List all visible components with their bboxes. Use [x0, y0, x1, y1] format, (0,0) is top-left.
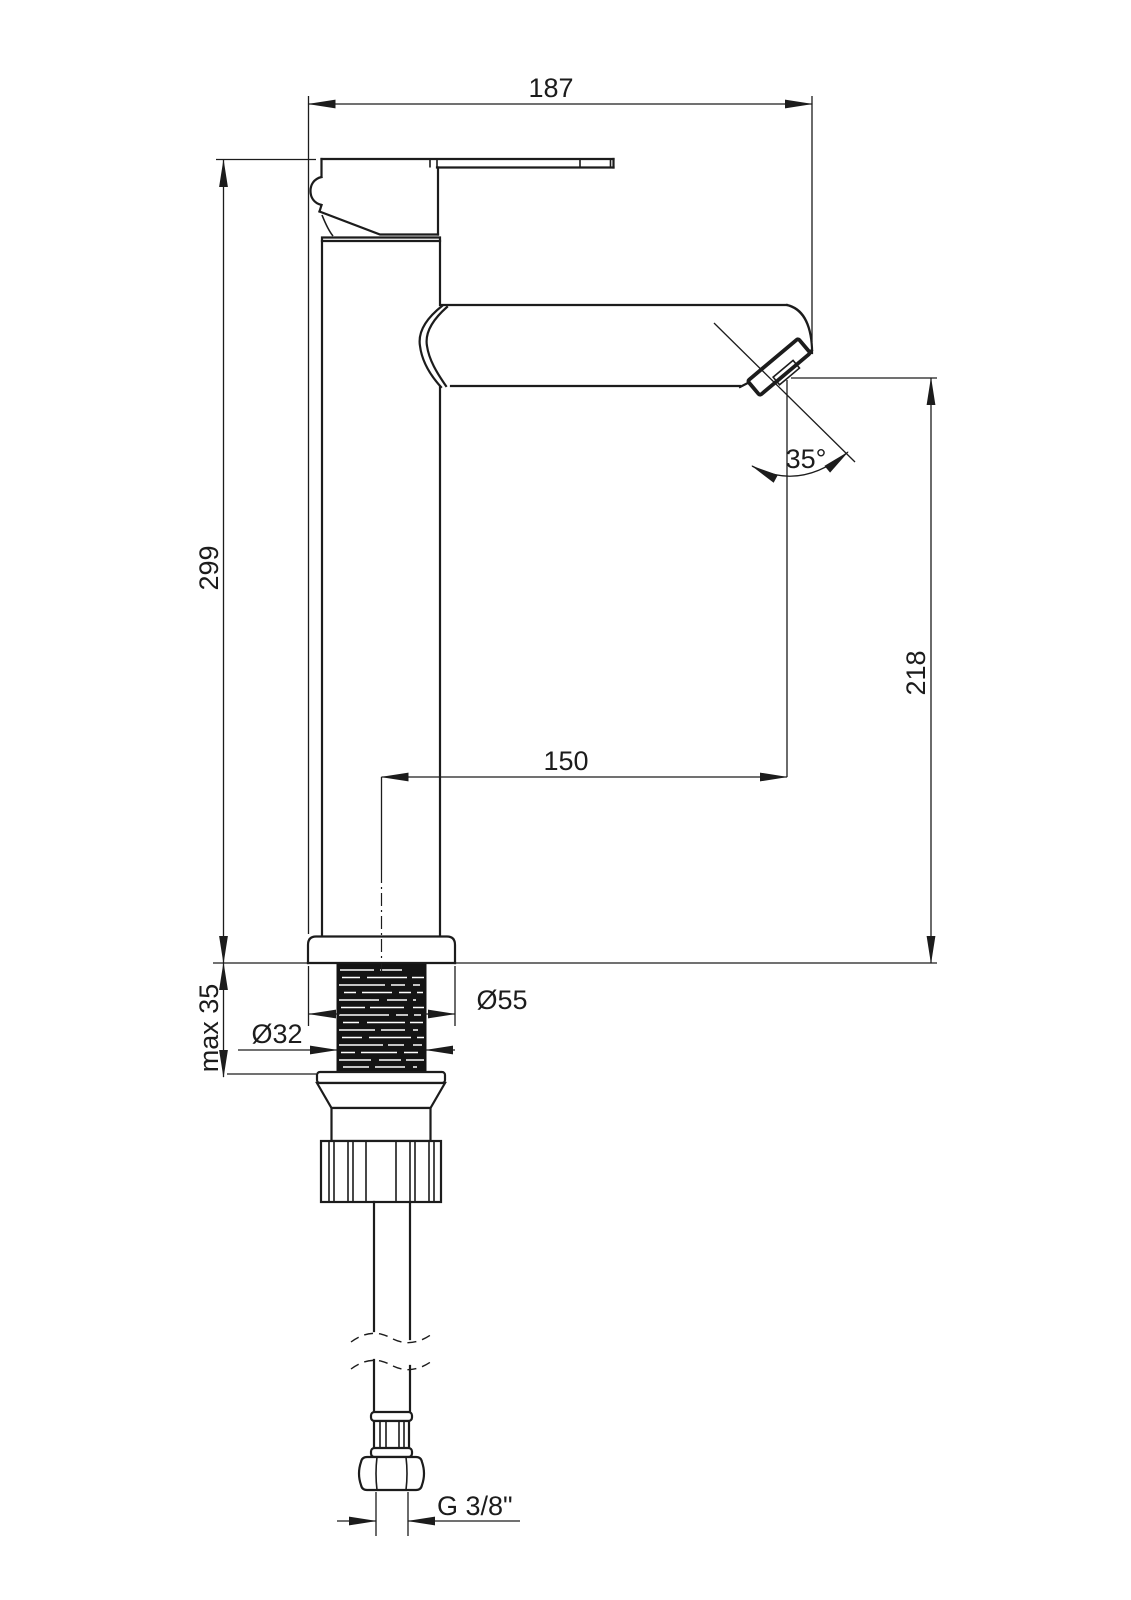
- faucet-body: [308, 159, 813, 1490]
- handle-cap: [311, 159, 441, 241]
- dim-187-label: 187: [528, 73, 573, 103]
- hex-nut: [359, 1457, 424, 1490]
- dim-d32-label: Ø32: [251, 1019, 302, 1049]
- dim-35deg-label: 35°: [786, 444, 827, 474]
- faucet-dimension-drawing: 187 299 max 35 218 150 35° Ø55 Ø32: [0, 0, 1131, 1600]
- aerator: [748, 339, 814, 399]
- dim-218-label: 218: [901, 650, 931, 695]
- mounting-hardware: [317, 1072, 445, 1202]
- break-line: [351, 1360, 432, 1369]
- lever-handle: [322, 159, 614, 168]
- dimensions: 187 299 max 35 218 150 35° Ø55 Ø32: [194, 73, 937, 1536]
- supply-hose: [351, 1202, 432, 1412]
- mounting-nut: [321, 1141, 441, 1202]
- cone-seal: [317, 1083, 445, 1108]
- washer: [317, 1072, 445, 1083]
- technical-drawing-page: 187 299 max 35 218 150 35° Ø55 Ø32: [0, 0, 1131, 1600]
- dim-150-label: 150: [543, 746, 588, 776]
- spray-axis-line: [714, 323, 855, 462]
- dim-d55-label: Ø55: [476, 985, 527, 1015]
- hose-connector: [359, 1412, 424, 1490]
- break-line: [351, 1333, 432, 1342]
- threaded-shank: [337, 963, 426, 1072]
- dim-299-label: 299: [194, 545, 224, 590]
- extension-line: [376, 1492, 408, 1536]
- dim-max35-label: max 35: [194, 984, 224, 1073]
- dim-g38-label: G 3/8": [437, 1491, 513, 1521]
- spacer: [332, 1108, 431, 1141]
